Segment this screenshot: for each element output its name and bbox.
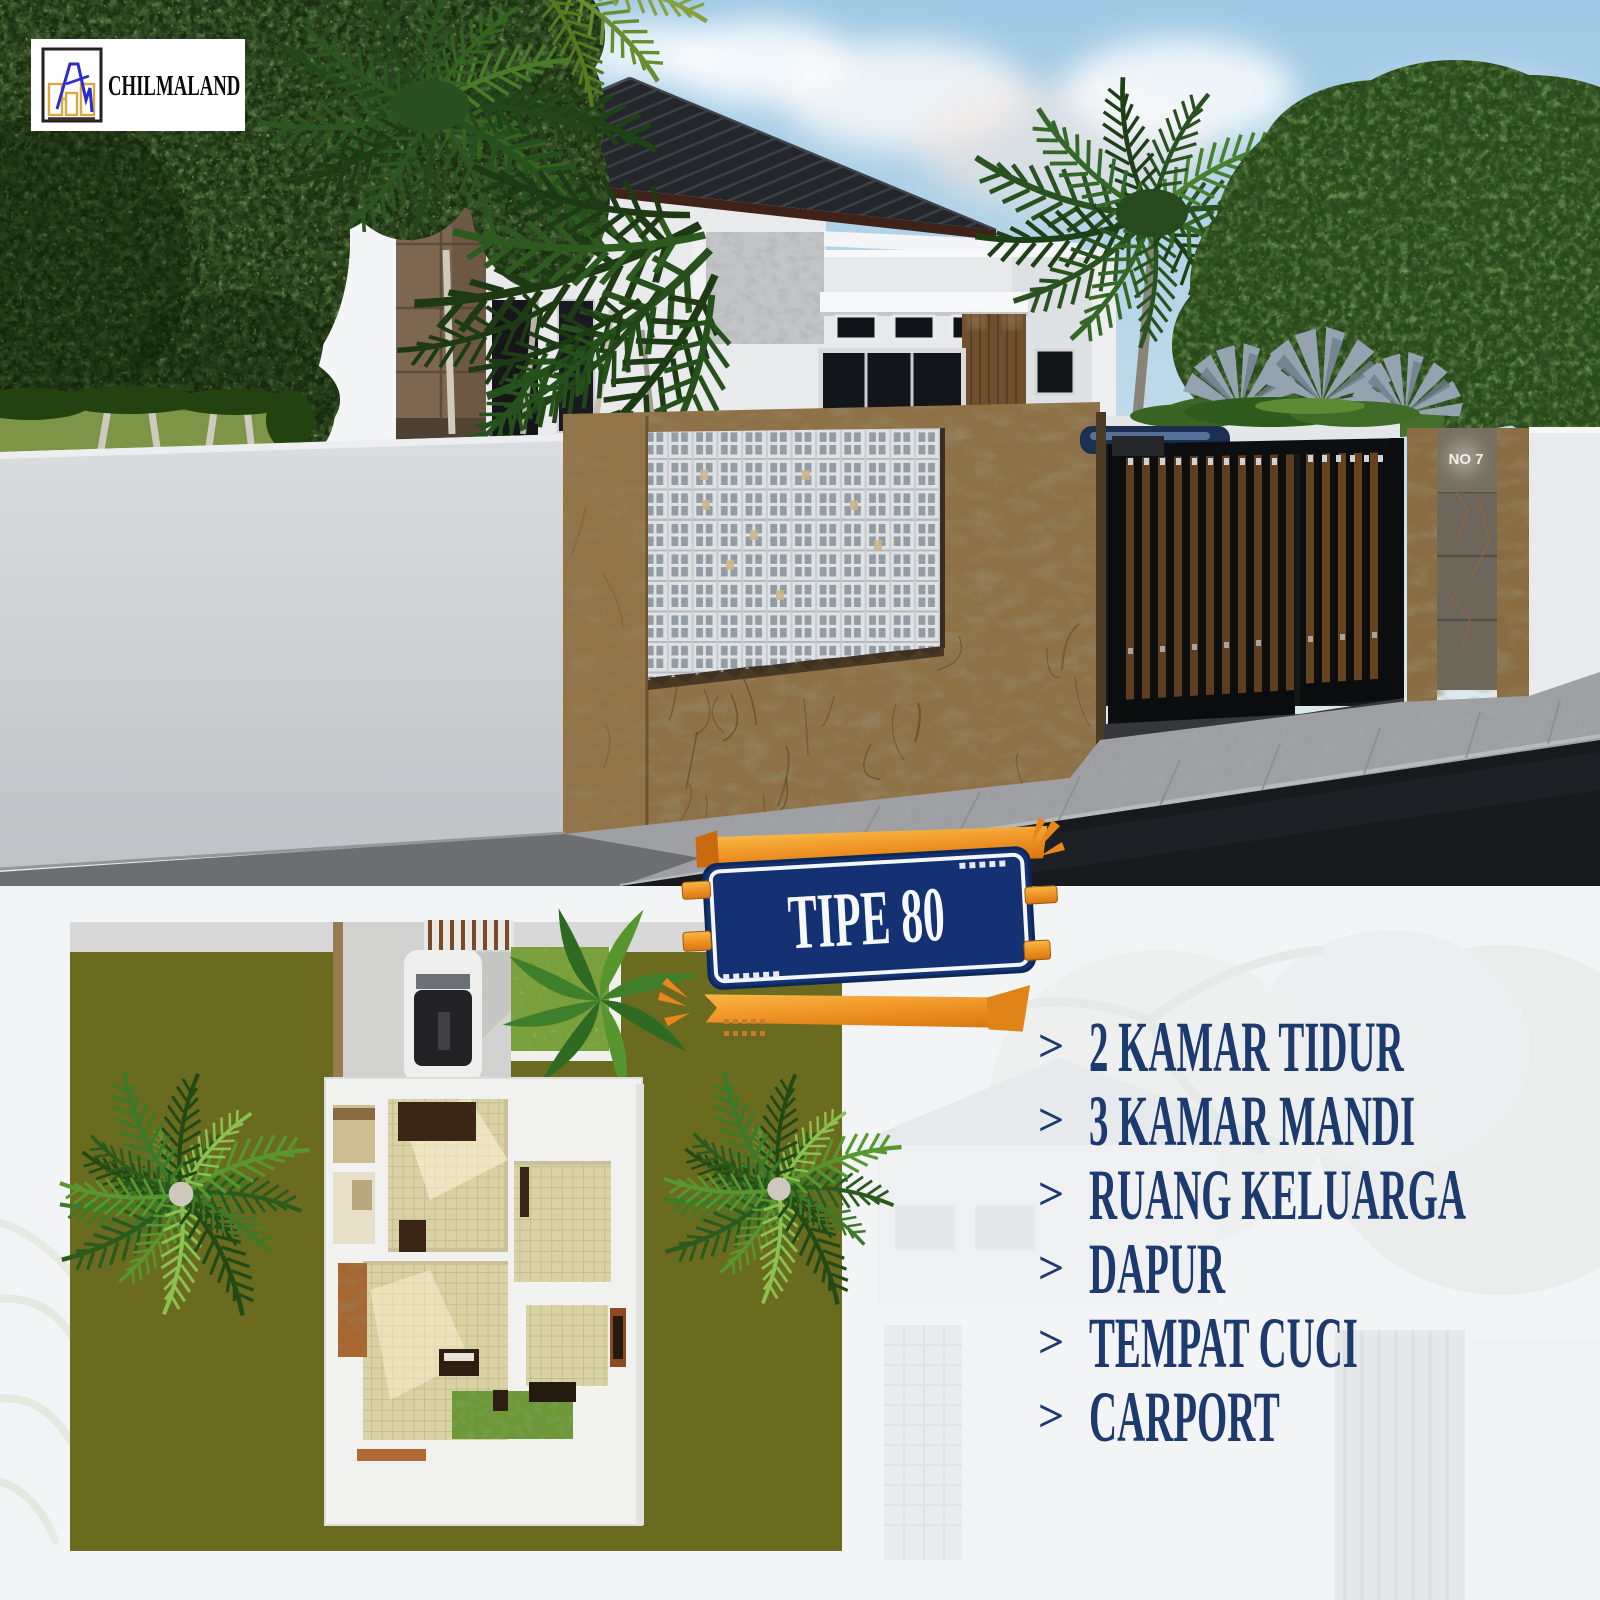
svg-text:>: >	[1038, 1094, 1064, 1145]
svg-text:NO 7: NO 7	[1448, 451, 1483, 468]
svg-text:>: >	[1038, 1168, 1064, 1219]
svg-text:>: >	[1038, 1316, 1064, 1367]
svg-text:>: >	[1038, 1242, 1064, 1293]
svg-text:CARPORT: CARPORT	[1089, 1376, 1280, 1457]
svg-text:>: >	[1038, 1020, 1064, 1071]
svg-text:TIPE 80: TIPE 80	[786, 871, 947, 966]
svg-text:>: >	[1038, 1390, 1064, 1441]
svg-text:2 KAMAR TIDUR: 2 KAMAR TIDUR	[1089, 1006, 1404, 1087]
svg-text:DAPUR: DAPUR	[1089, 1228, 1226, 1309]
svg-text:TEMPAT CUCI: TEMPAT CUCI	[1089, 1302, 1358, 1383]
svg-text:CHILMALAND: CHILMALAND	[108, 72, 240, 103]
svg-text:3 KAMAR MANDI: 3 KAMAR MANDI	[1089, 1080, 1415, 1161]
svg-text:RUANG KELUARGA: RUANG KELUARGA	[1089, 1154, 1466, 1235]
